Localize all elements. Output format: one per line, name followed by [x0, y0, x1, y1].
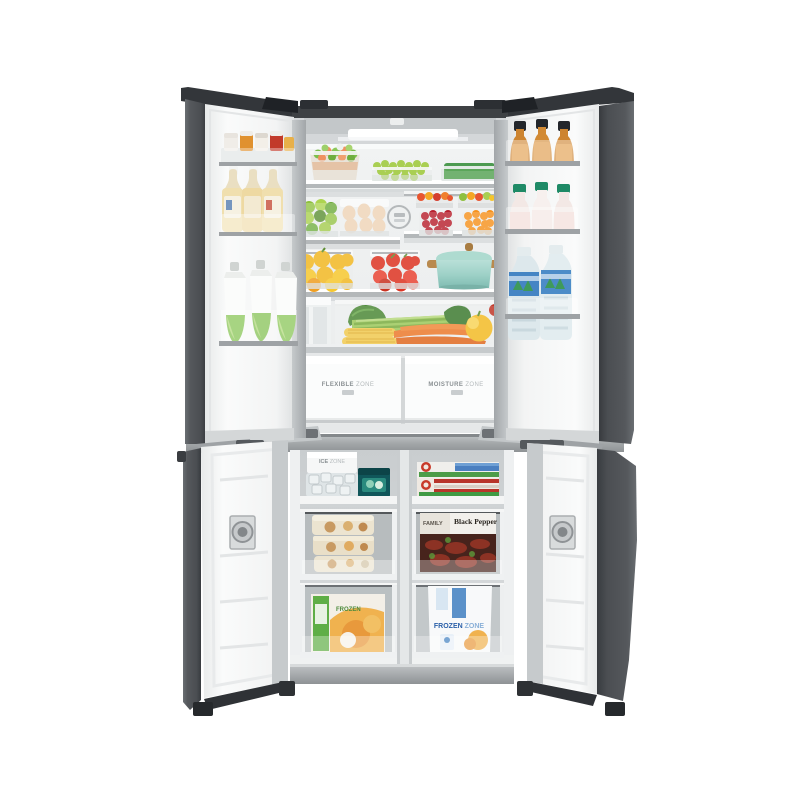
svg-text:FROZEN ZONE: FROZEN ZONE [434, 623, 485, 630]
svg-text:ICE ZONE: ICE ZONE [319, 459, 345, 465]
svg-text:MOISTURE ZONE: MOISTURE ZONE [428, 382, 483, 388]
svg-text:FROZEN: FROZEN [336, 607, 361, 613]
svg-text:FLEXIBLE ZONE: FLEXIBLE ZONE [322, 382, 375, 388]
svg-text:Black Pepper: Black Pepper [454, 517, 498, 526]
svg-text:FAMILY: FAMILY [423, 521, 443, 527]
